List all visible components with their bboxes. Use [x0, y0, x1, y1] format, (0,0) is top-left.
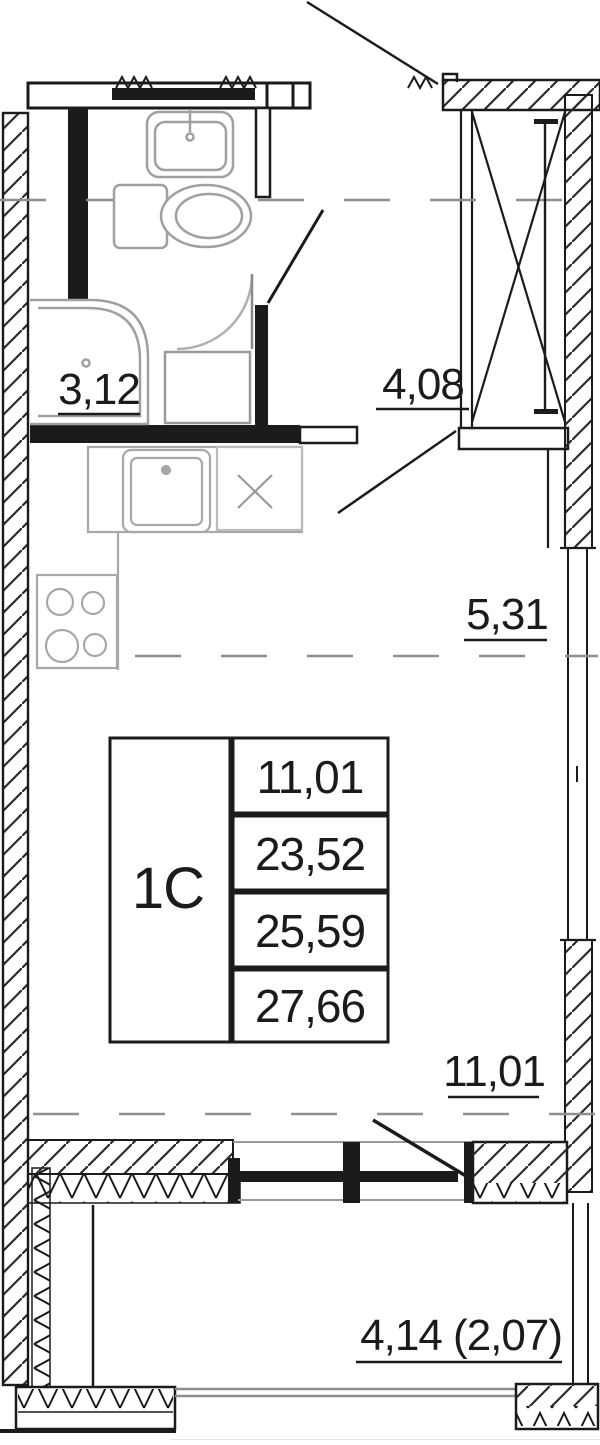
- toilet: [114, 185, 251, 248]
- burner: [47, 589, 73, 615]
- table-value: 11,01: [257, 751, 364, 803]
- bathroom-east-wall-lower: [255, 305, 268, 428]
- hall-south-wall-segment: [300, 427, 357, 443]
- block-insulation: [473, 1183, 567, 1203]
- block-insulation: [516, 1406, 598, 1426]
- unit-info-table: 1C 11,01 23,52 25,59 27,66: [110, 738, 388, 1042]
- balcony-front-right-block: [516, 1384, 598, 1429]
- appliance-slot: [217, 447, 302, 530]
- burner: [84, 634, 106, 656]
- right-wall-lower: [565, 940, 592, 1192]
- block-insulation: [18, 1389, 173, 1409]
- sink-drain: [187, 134, 194, 141]
- balcony-area-label: 4,14 (2,07): [360, 1311, 562, 1360]
- toilet-bowl-inner: [176, 194, 242, 238]
- bottom-wall-insulation-band: [28, 1174, 240, 1203]
- i-beam-cap: [534, 119, 558, 124]
- bathroom-area-label: 3,12: [58, 365, 140, 414]
- kitchen-sink: [123, 450, 210, 532]
- block-hatch: [473, 1142, 567, 1183]
- bathroom-south-wall: [30, 425, 300, 443]
- bathroom-east-wall-upper: [256, 108, 270, 197]
- floor-plan: 1C 11,01 23,52 25,59 27,66 3,12 4,08 5,3…: [0, 0, 600, 1440]
- table-value: 23,52: [255, 828, 365, 880]
- bottom-wall-hatched-band: [28, 1140, 233, 1174]
- burner: [46, 630, 78, 662]
- top-wall-core: [112, 88, 255, 100]
- bottom-wall-right-block: [473, 1142, 567, 1203]
- living-room-area-label: 11,01: [443, 1047, 545, 1096]
- entrance-door-jamb: [267, 83, 293, 108]
- plan-background: [0, 0, 600, 1440]
- bathroom-west-wall: [68, 84, 88, 301]
- kitchen-faucet-dot: [162, 466, 170, 474]
- stove: [37, 575, 117, 668]
- table-value: 25,59: [255, 905, 365, 957]
- left-wall-hatched-band: [3, 113, 28, 1385]
- toilet-tank: [114, 185, 167, 248]
- right-wall-upper: [565, 95, 592, 548]
- kitchen-area-label: 5,31: [466, 590, 548, 639]
- balcony-front-left-block: [0, 1387, 176, 1431]
- washing-machine: [165, 352, 250, 423]
- burner: [82, 592, 104, 614]
- i-beam-cap: [534, 409, 558, 414]
- block-hatch: [516, 1384, 598, 1406]
- balcony-window-mullion: [343, 1142, 360, 1203]
- hall-area-label: 4,08: [382, 360, 464, 409]
- sink: [147, 110, 233, 177]
- shaft-sill: [459, 428, 568, 449]
- table-value: 27,66: [255, 980, 365, 1032]
- unit-type-label: 1C: [132, 856, 204, 921]
